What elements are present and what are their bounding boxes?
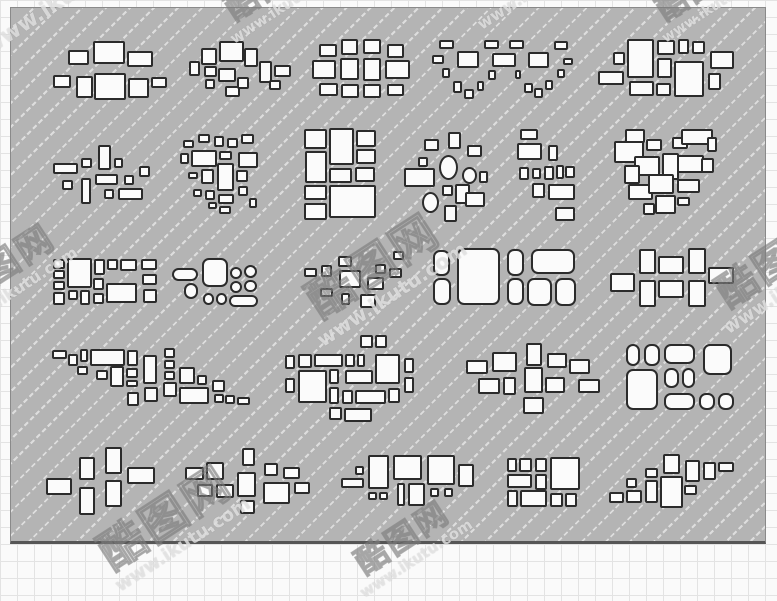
- photo-frame: [53, 75, 71, 88]
- photo-frame: [269, 80, 281, 90]
- photo-frame: [237, 77, 249, 89]
- photo-frame: [701, 158, 714, 173]
- photo-frame: [241, 134, 254, 144]
- photo-frame: [544, 166, 554, 180]
- photo-frame: [524, 83, 533, 93]
- photo-frame: [433, 278, 451, 305]
- photo-frame: [81, 178, 91, 204]
- photo-frame: [477, 81, 484, 91]
- photo-frame: [387, 44, 404, 58]
- photo-frame: [244, 280, 257, 292]
- photo-frame: [439, 40, 454, 49]
- photo-frame: [545, 80, 553, 90]
- photo-frame: [545, 377, 565, 393]
- photo-frame: [462, 167, 477, 184]
- photo-frame: [718, 462, 734, 472]
- photo-frame: [127, 350, 138, 366]
- photo-frame: [519, 458, 532, 472]
- photo-frame: [106, 283, 137, 303]
- photo-frame: [363, 84, 381, 98]
- photo-frame: [656, 83, 671, 96]
- photo-frame: [464, 89, 474, 99]
- photo-frame: [565, 166, 575, 178]
- photo-frame: [688, 280, 706, 307]
- photo-frame: [645, 480, 658, 503]
- photo-frame: [242, 448, 255, 466]
- photo-frame: [212, 380, 225, 392]
- photo-frame: [151, 77, 167, 88]
- photo-frame: [68, 354, 78, 366]
- photo-frame: [682, 368, 695, 388]
- photo-frame: [433, 250, 450, 276]
- photo-frame: [329, 369, 339, 384]
- photo-frame: [218, 68, 236, 82]
- photo-frame: [707, 137, 717, 152]
- photo-frame: [304, 185, 327, 200]
- photo-frame: [164, 360, 175, 369]
- photo-frame: [507, 249, 524, 276]
- photo-frame: [230, 267, 242, 279]
- photo-frame: [304, 268, 317, 277]
- photo-frame: [329, 128, 354, 165]
- photo-frame: [46, 478, 72, 495]
- photo-frame: [127, 51, 153, 67]
- photo-frame: [644, 344, 660, 366]
- photo-frame: [520, 129, 538, 140]
- photo-frame: [230, 281, 242, 293]
- photo-frame: [375, 354, 400, 384]
- photo-frame: [626, 369, 658, 410]
- photo-frame: [718, 393, 734, 410]
- photo-frame: [532, 168, 541, 179]
- photo-frame: [404, 358, 414, 373]
- photo-frame: [418, 157, 428, 167]
- photo-frame: [554, 41, 568, 50]
- photo-frame: [548, 184, 575, 200]
- photo-frame: [127, 467, 155, 484]
- photo-frame: [345, 370, 373, 384]
- photo-frame: [249, 198, 257, 208]
- photo-frame: [338, 256, 352, 267]
- photo-frame: [193, 189, 202, 197]
- photo-frame: [79, 457, 95, 480]
- photo-frame: [98, 145, 111, 170]
- photo-frame: [664, 344, 695, 364]
- photo-frame: [678, 39, 689, 54]
- photo-frame: [430, 488, 439, 497]
- photo-frame: [658, 280, 684, 298]
- photo-frame: [509, 40, 524, 49]
- photo-frame: [96, 370, 108, 380]
- photo-frame: [305, 151, 327, 183]
- photo-frame: [345, 354, 355, 367]
- photo-frame: [202, 258, 228, 287]
- photo-frame: [191, 150, 217, 167]
- photo-frame: [388, 388, 400, 403]
- photo-frame: [444, 205, 457, 222]
- photo-frame: [143, 355, 157, 384]
- photo-frame: [453, 81, 462, 93]
- photo-frame: [526, 343, 542, 366]
- photo-frame: [52, 350, 67, 359]
- photo-frame: [93, 293, 104, 304]
- photo-frame: [699, 393, 715, 410]
- photo-frame: [488, 70, 496, 80]
- photo-frame: [556, 165, 564, 179]
- photo-frame: [217, 163, 234, 191]
- photo-frame: [547, 353, 567, 368]
- photo-frame: [118, 188, 143, 200]
- photo-frame: [264, 463, 278, 476]
- photo-frame: [507, 474, 532, 488]
- photo-frame: [624, 165, 640, 184]
- photo-frame: [708, 73, 721, 90]
- photo-frame: [424, 139, 439, 151]
- photo-frame: [645, 468, 658, 478]
- photo-frame: [458, 464, 474, 487]
- photo-frame: [375, 264, 386, 274]
- photo-frame: [53, 163, 78, 174]
- photo-frame: [214, 394, 224, 403]
- photo-frame: [478, 378, 500, 394]
- photo-frame: [515, 70, 521, 79]
- photo-frame: [329, 407, 342, 420]
- photo-frame: [164, 371, 175, 380]
- photo-frame: [144, 387, 158, 402]
- photo-frame: [660, 476, 683, 508]
- photo-frame: [578, 379, 600, 393]
- photo-frame: [520, 490, 547, 507]
- photo-frame: [205, 190, 215, 200]
- photo-frame: [387, 84, 404, 96]
- photo-frame: [244, 48, 258, 67]
- photo-frame: [626, 344, 640, 366]
- photo-frame: [304, 203, 327, 220]
- photo-frame: [124, 175, 134, 185]
- photo-frame: [143, 289, 157, 303]
- photo-frame: [90, 349, 125, 366]
- photo-frame: [304, 129, 327, 149]
- photo-frame: [627, 39, 654, 78]
- photo-frame: [393, 455, 422, 480]
- photo-frame: [93, 41, 125, 64]
- photo-frame: [341, 39, 358, 55]
- photo-frame: [626, 478, 637, 488]
- photo-frame: [368, 492, 377, 500]
- photo-frame: [197, 484, 213, 497]
- photo-frame: [236, 170, 248, 182]
- photo-frame: [389, 268, 402, 278]
- photo-frame: [341, 84, 359, 98]
- photo-frame: [216, 293, 227, 305]
- photo-frame: [285, 378, 295, 393]
- photo-frame: [53, 259, 65, 269]
- photo-frame: [393, 251, 404, 260]
- photo-frame: [439, 155, 458, 180]
- photo-frame: [128, 78, 149, 98]
- photo-frame: [298, 370, 327, 403]
- photo-frame: [341, 478, 364, 488]
- photo-frame: [114, 158, 123, 168]
- photo-frame: [492, 352, 517, 372]
- photo-frame: [107, 259, 118, 270]
- photo-frame: [639, 249, 656, 274]
- photo-frame: [528, 52, 549, 68]
- photo-frame: [692, 41, 705, 54]
- photo-frame: [80, 349, 88, 362]
- photo-frame: [219, 151, 232, 160]
- photo-frame: [657, 58, 672, 78]
- photo-frame: [503, 377, 516, 395]
- photo-frame: [368, 455, 389, 489]
- photo-frame: [555, 278, 576, 306]
- photo-frame: [285, 355, 295, 369]
- photo-frame: [360, 335, 373, 348]
- photo-frame: [355, 167, 375, 182]
- photo-frame: [67, 258, 92, 288]
- photo-frame: [674, 61, 704, 97]
- photo-frame: [710, 51, 734, 69]
- photo-frame: [610, 273, 635, 292]
- photo-wall-template-sheet: { "canvas": { "x": 10, "y": 7, "width": …: [0, 0, 777, 565]
- photo-frame: [344, 408, 372, 422]
- photo-frame: [703, 462, 716, 480]
- photo-frame: [355, 390, 386, 404]
- photo-frame: [77, 366, 88, 375]
- photo-frame: [219, 41, 244, 62]
- photo-frame: [555, 207, 575, 221]
- photo-frame: [263, 482, 290, 504]
- photo-frame: [519, 167, 529, 180]
- photo-frame: [68, 290, 78, 300]
- photo-frame: [444, 488, 453, 497]
- photo-frame: [442, 185, 453, 196]
- photo-frame: [189, 61, 200, 76]
- photo-frame: [363, 58, 381, 81]
- photo-frame: [646, 139, 662, 151]
- photo-frame: [164, 348, 175, 358]
- photo-frame: [314, 354, 343, 367]
- photo-frame: [557, 69, 565, 78]
- photo-frame: [81, 158, 92, 168]
- photo-frame: [432, 55, 444, 64]
- photo-frame: [205, 79, 215, 89]
- photo-frame: [379, 492, 388, 500]
- photo-frame: [404, 377, 414, 393]
- photo-frame: [237, 472, 256, 497]
- photo-frame: [404, 168, 435, 187]
- photo-frame: [663, 454, 680, 474]
- photo-frame: [201, 48, 217, 65]
- photo-frame: [219, 206, 231, 214]
- photo-frame: [535, 458, 547, 472]
- photo-frame: [427, 455, 455, 485]
- photo-frame: [613, 52, 625, 65]
- photo-frame: [312, 60, 336, 79]
- photo-frame: [648, 174, 674, 194]
- photo-frame: [342, 390, 353, 404]
- photo-frame: [465, 192, 485, 207]
- photo-frame: [685, 460, 700, 482]
- photo-frame: [565, 493, 577, 507]
- photo-frame: [237, 397, 250, 405]
- photo-frame: [569, 359, 590, 374]
- photo-frame: [664, 368, 679, 388]
- photo-frame: [94, 73, 126, 100]
- photo-frame: [53, 270, 65, 279]
- photo-frame: [53, 281, 65, 290]
- photo-frame: [201, 169, 214, 184]
- photo-frame: [688, 248, 706, 274]
- photo-frame: [442, 68, 450, 78]
- photo-frame: [163, 382, 177, 397]
- photo-frame: [550, 493, 563, 507]
- photo-frame: [339, 270, 361, 288]
- photo-frame: [198, 134, 210, 143]
- photo-frame: [126, 380, 138, 387]
- photo-frame: [523, 397, 544, 414]
- photo-frame: [532, 183, 545, 198]
- photo-frame: [639, 280, 656, 307]
- photo-frame: [479, 171, 488, 183]
- photo-frame: [677, 155, 704, 173]
- photo-frame: [105, 447, 122, 474]
- photo-frame: [598, 71, 624, 85]
- photo-frame: [320, 288, 333, 297]
- photo-frame: [79, 487, 95, 515]
- photo-frame: [80, 290, 90, 305]
- photo-frame: [127, 392, 139, 406]
- photo-frame: [197, 375, 207, 385]
- photo-frame: [214, 136, 224, 147]
- photo-frame: [179, 367, 195, 384]
- photo-frame: [95, 174, 118, 185]
- photo-frame: [341, 293, 350, 305]
- photo-frame: [238, 186, 248, 196]
- photo-frame: [274, 65, 291, 77]
- photo-frame: [457, 248, 500, 305]
- photo-frame: [208, 202, 217, 209]
- photo-frame: [703, 344, 732, 375]
- photo-frame: [340, 58, 359, 80]
- photo-frame: [76, 76, 93, 98]
- photo-frame: [664, 393, 695, 410]
- photo-frame: [204, 66, 217, 77]
- photo-frame: [188, 172, 198, 179]
- photo-frame: [298, 354, 312, 368]
- photo-frame: [180, 153, 189, 164]
- photo-frame: [319, 83, 338, 96]
- photo-frame: [535, 474, 547, 490]
- photo-frame: [179, 387, 209, 404]
- photo-frame: [203, 293, 214, 305]
- photo-frame: [363, 39, 381, 54]
- photo-frame: [367, 277, 384, 290]
- photo-frame: [244, 265, 257, 278]
- photo-frame: [53, 292, 65, 305]
- photo-frame: [227, 138, 238, 148]
- photo-frame: [677, 197, 690, 206]
- photo-frame: [457, 51, 479, 68]
- photo-frame: [527, 278, 552, 306]
- photo-frame: [238, 152, 258, 168]
- photo-frame: [229, 295, 258, 307]
- photo-frame: [550, 457, 580, 490]
- photo-frame: [172, 268, 198, 281]
- photo-frame: [356, 130, 376, 147]
- photo-frame: [507, 458, 517, 472]
- photo-frame: [321, 265, 332, 277]
- photo-frame: [658, 256, 684, 274]
- photo-frame: [534, 88, 543, 98]
- photo-frame: [548, 145, 558, 161]
- photo-frame: [240, 500, 255, 514]
- photo-frame: [507, 490, 518, 507]
- photo-frame: [356, 149, 376, 164]
- design-canvas: [10, 7, 766, 544]
- photo-frame: [185, 467, 204, 480]
- photo-frame: [385, 60, 410, 79]
- photo-frame: [355, 466, 364, 475]
- photo-frame: [110, 366, 124, 387]
- photo-frame: [677, 179, 700, 193]
- photo-frame: [375, 335, 387, 348]
- photo-frame: [422, 192, 439, 213]
- photo-frame: [329, 387, 339, 404]
- photo-frame: [657, 40, 675, 55]
- photo-frame: [329, 168, 352, 183]
- photo-frame: [629, 81, 654, 96]
- photo-frame: [141, 259, 157, 270]
- photo-frame: [68, 50, 89, 65]
- photo-frame: [329, 185, 376, 218]
- photo-frame: [62, 180, 73, 190]
- photo-frame: [484, 40, 499, 49]
- photo-frame: [319, 44, 337, 57]
- photo-frame: [609, 492, 624, 503]
- photo-frame: [206, 462, 224, 480]
- photo-frame: [408, 483, 425, 506]
- photo-frame: [517, 143, 542, 160]
- photo-frame: [626, 490, 642, 503]
- photo-frame: [94, 259, 105, 275]
- photo-frame: [655, 195, 676, 214]
- photo-frame: [104, 189, 114, 199]
- photo-frame: [216, 484, 234, 498]
- photo-frame: [126, 368, 138, 378]
- photo-frame: [507, 278, 524, 305]
- photo-frame: [524, 367, 543, 393]
- photo-frame: [531, 249, 575, 274]
- photo-frame: [467, 145, 482, 157]
- photo-frame: [643, 203, 655, 215]
- photo-frame: [294, 482, 310, 494]
- photo-frame: [283, 467, 300, 479]
- photo-frame: [225, 395, 235, 404]
- photo-frame: [397, 483, 405, 506]
- photo-frame: [357, 354, 365, 367]
- photo-frame: [184, 283, 198, 299]
- photo-frame: [492, 53, 516, 67]
- photo-frame: [360, 294, 376, 308]
- photo-frame: [139, 166, 150, 177]
- photo-frame: [93, 278, 104, 290]
- photo-frame: [708, 267, 734, 284]
- photo-frame: [466, 360, 488, 374]
- photo-frame: [183, 140, 194, 148]
- photo-frame: [218, 194, 234, 204]
- photo-frame: [684, 485, 697, 495]
